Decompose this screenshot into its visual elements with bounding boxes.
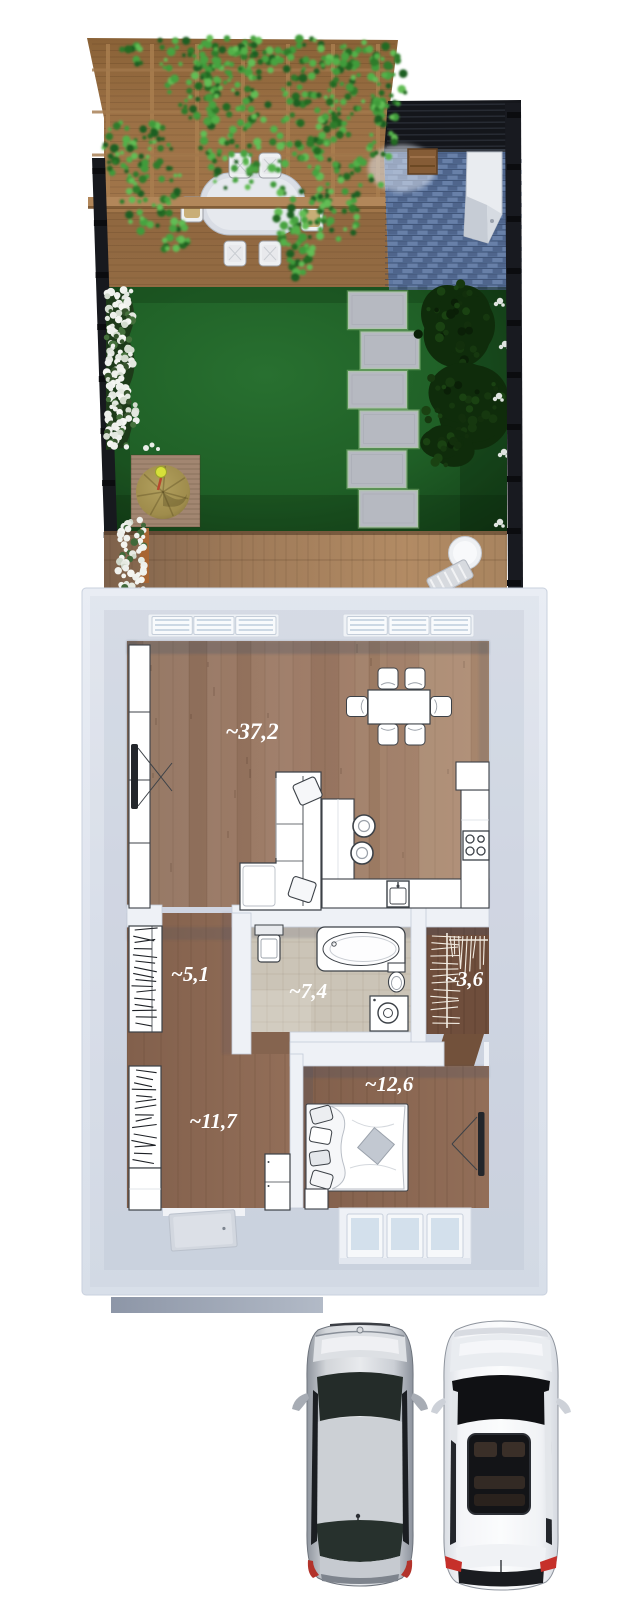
svg-text:~7,4: ~7,4 — [289, 979, 327, 1003]
svg-text:~11,7: ~11,7 — [189, 1109, 238, 1133]
svg-text:~37,2: ~37,2 — [225, 719, 278, 744]
svg-text:~3,6: ~3,6 — [445, 967, 484, 991]
svg-text:~12,6: ~12,6 — [365, 1072, 414, 1096]
svg-text:~5,1: ~5,1 — [171, 962, 209, 986]
